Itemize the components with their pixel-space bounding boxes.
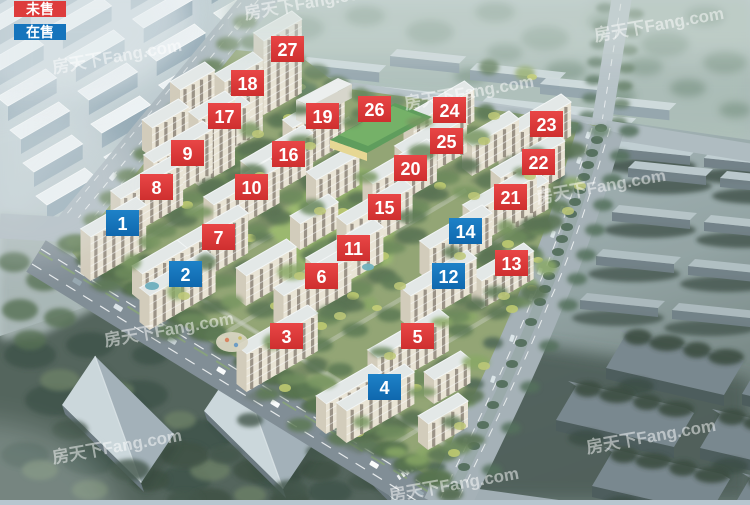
svg-text:2: 2 bbox=[180, 265, 190, 285]
svg-text:6: 6 bbox=[316, 267, 326, 287]
svg-text:13: 13 bbox=[501, 254, 521, 274]
svg-text:16: 16 bbox=[278, 145, 298, 165]
svg-text:14: 14 bbox=[455, 222, 475, 242]
svg-text:23: 23 bbox=[536, 115, 556, 135]
svg-text:12: 12 bbox=[438, 267, 458, 287]
svg-text:3: 3 bbox=[281, 327, 291, 347]
svg-text:20: 20 bbox=[400, 159, 420, 179]
svg-text:4: 4 bbox=[379, 378, 389, 398]
svg-text:8: 8 bbox=[151, 178, 161, 198]
svg-text:17: 17 bbox=[214, 107, 234, 127]
svg-text:26: 26 bbox=[364, 100, 384, 120]
svg-text:在售: 在售 bbox=[26, 24, 54, 40]
svg-text:未售: 未售 bbox=[26, 1, 54, 17]
svg-text:24: 24 bbox=[439, 101, 459, 121]
svg-text:21: 21 bbox=[500, 188, 520, 208]
svg-text:27: 27 bbox=[277, 40, 297, 60]
svg-text:10: 10 bbox=[241, 178, 261, 198]
svg-text:15: 15 bbox=[374, 198, 394, 218]
svg-text:5: 5 bbox=[412, 327, 422, 347]
svg-text:19: 19 bbox=[312, 107, 332, 127]
svg-text:7: 7 bbox=[213, 228, 223, 248]
svg-text:9: 9 bbox=[182, 144, 192, 164]
svg-text:18: 18 bbox=[237, 74, 257, 94]
svg-text:25: 25 bbox=[436, 132, 456, 152]
svg-text:11: 11 bbox=[344, 239, 363, 259]
svg-text:1: 1 bbox=[117, 214, 127, 234]
svg-text:22: 22 bbox=[528, 153, 548, 173]
